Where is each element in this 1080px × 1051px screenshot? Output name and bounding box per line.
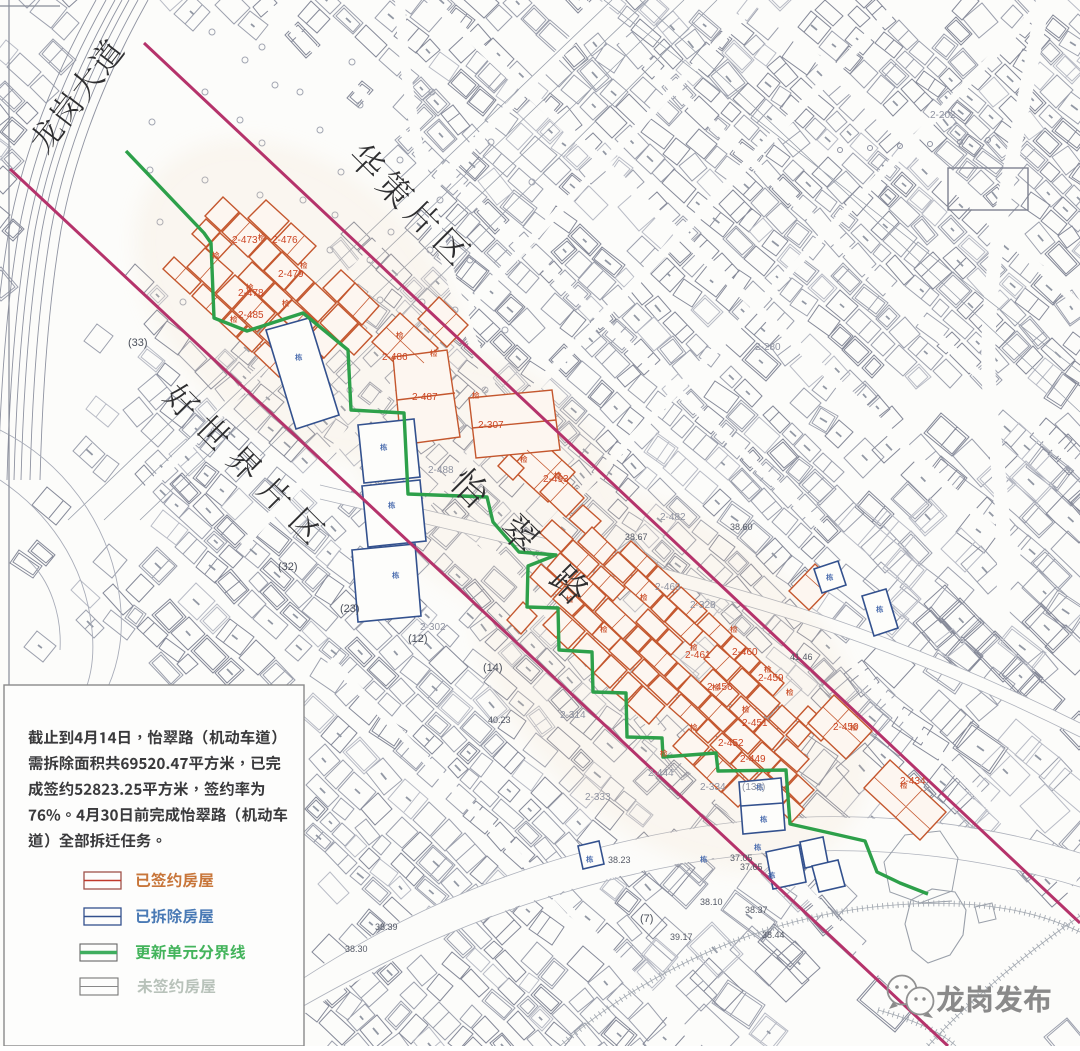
svg-text:38.60: 38.60: [730, 522, 753, 532]
svg-text:2-487: 2-487: [412, 392, 438, 403]
svg-text:38.10: 38.10: [700, 897, 723, 907]
svg-text:2-302: 2-302: [420, 622, 446, 633]
svg-text:38.39: 38.39: [375, 922, 398, 932]
svg-text:2-479: 2-479: [278, 269, 304, 280]
svg-text:38.30: 38.30: [345, 944, 368, 954]
svg-text:38.23: 38.23: [608, 855, 631, 865]
svg-text:2-459: 2-459: [758, 673, 784, 684]
svg-text:2-482: 2-482: [660, 512, 686, 523]
svg-text:38.44: 38.44: [762, 930, 785, 940]
svg-text:2-476: 2-476: [272, 235, 298, 246]
svg-text:2-202: 2-202: [930, 110, 956, 121]
svg-text:2-486: 2-486: [382, 352, 408, 363]
svg-text:37.65: 37.65: [740, 862, 763, 872]
svg-text:40.23: 40.23: [488, 715, 511, 725]
svg-text:2-451: 2-451: [742, 718, 768, 729]
svg-text:2-473: 2-473: [232, 235, 258, 246]
svg-text:(133): (133): [742, 782, 765, 793]
svg-text:(32): (32): [278, 561, 298, 573]
svg-text:2-469: 2-469: [655, 582, 681, 593]
svg-text:2-456: 2-456: [707, 682, 733, 693]
svg-text:2-460: 2-460: [732, 647, 758, 658]
svg-text:2-488: 2-488: [428, 465, 454, 476]
svg-text:2-280: 2-280: [755, 342, 781, 353]
svg-text:38.67: 38.67: [625, 532, 648, 542]
svg-text:2-434: 2-434: [900, 776, 926, 787]
svg-text:(23): (23): [340, 603, 360, 615]
svg-text:39.17: 39.17: [670, 932, 693, 942]
svg-text:(7): (7): [640, 913, 653, 925]
svg-text:41.46: 41.46: [790, 652, 813, 662]
svg-text:(33): (33): [128, 337, 148, 349]
svg-text:(12): (12): [408, 633, 428, 645]
svg-text:2-485: 2-485: [238, 310, 264, 321]
svg-text:2-449: 2-449: [740, 754, 766, 765]
svg-text:2-314: 2-314: [560, 710, 586, 721]
svg-text:2-444: 2-444: [648, 768, 674, 779]
svg-text:38.37: 38.37: [745, 905, 768, 915]
svg-text:2-461: 2-461: [685, 650, 711, 661]
svg-text:2-333: 2-333: [585, 792, 611, 803]
svg-text:2-334: 2-334: [700, 782, 726, 793]
svg-text:(14): (14): [483, 662, 503, 674]
svg-text:2-493: 2-493: [543, 474, 569, 485]
svg-text:2-452: 2-452: [718, 738, 744, 749]
svg-text:2-307: 2-307: [478, 420, 504, 431]
svg-text:2-328: 2-328: [690, 600, 716, 611]
